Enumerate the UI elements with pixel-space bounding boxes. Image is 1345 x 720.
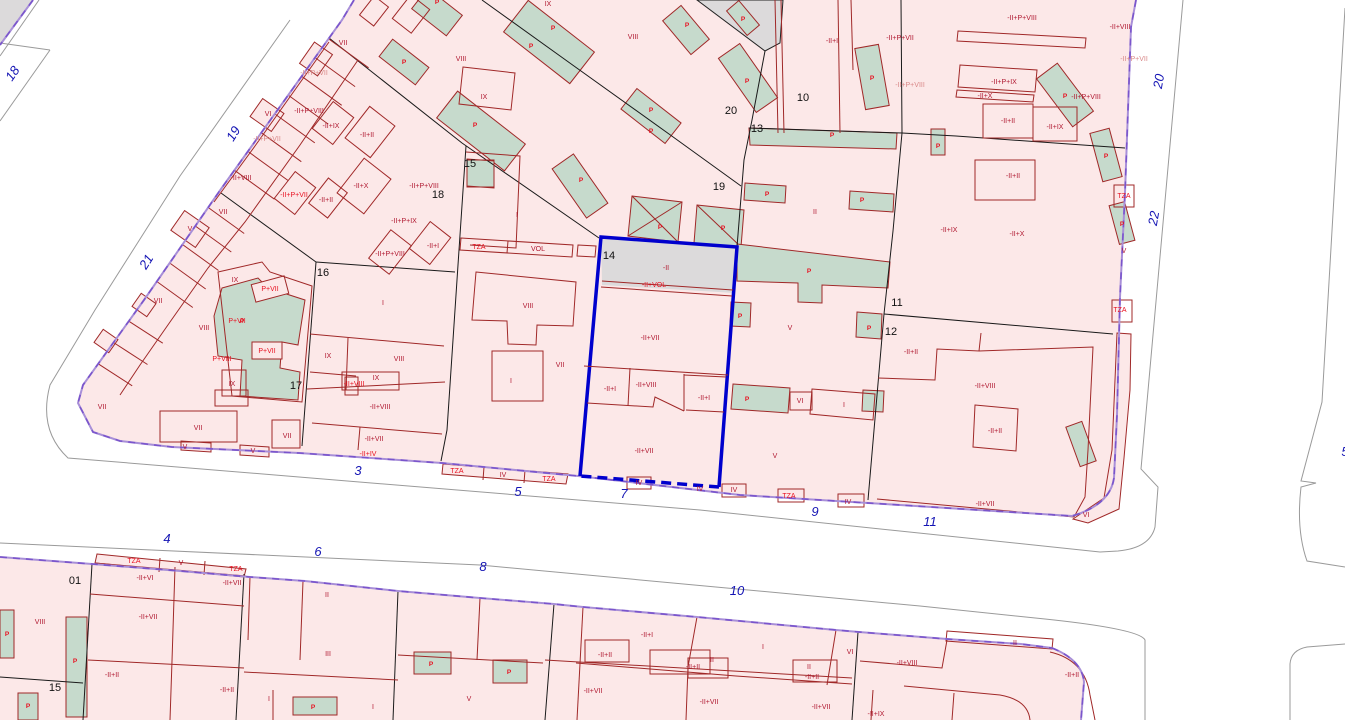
svg-text:-II+VIII: -II+VIII [897, 660, 918, 667]
svg-text:12: 12 [885, 326, 897, 338]
svg-text:II: II [710, 657, 714, 664]
svg-text:TZA: TZA [472, 244, 486, 251]
svg-text:P+VIII: P+VIII [212, 356, 231, 363]
svg-text:11: 11 [923, 514, 937, 529]
svg-text:4: 4 [163, 531, 170, 546]
svg-text:-II+II: -II+II [105, 672, 119, 679]
svg-text:II: II [325, 592, 329, 599]
svg-text:-II+IX: -II+IX [868, 711, 885, 718]
svg-text:I: I [268, 696, 270, 703]
svg-text:VIII: VIII [456, 56, 467, 63]
svg-text:-II+II: -II+II [1006, 173, 1020, 180]
svg-text:VI: VI [797, 398, 804, 405]
svg-text:P: P [402, 59, 407, 66]
svg-text:P: P [473, 122, 478, 129]
svg-text:IX: IX [545, 1, 552, 8]
svg-text:-II+I: -II+I [427, 243, 439, 250]
svg-text:IV: IV [697, 486, 704, 493]
svg-text:TZA: TZA [450, 468, 464, 475]
svg-text:-II+VII: -II+VII [641, 335, 660, 342]
svg-text:-II+VII: -II+VII [223, 580, 242, 587]
svg-text:-II+II: -II+II [686, 664, 700, 671]
svg-text:P: P [1120, 221, 1125, 228]
svg-text:P: P [936, 143, 941, 150]
svg-text:-II+VIII: -II+VIII [1110, 24, 1131, 31]
svg-text:-II+IX: -II+IX [1047, 124, 1064, 131]
svg-text:P: P [870, 75, 875, 82]
svg-text:15: 15 [464, 158, 476, 170]
svg-text:VOL: VOL [531, 246, 545, 253]
svg-text:TZA: TZA [127, 558, 141, 565]
svg-text:V: V [183, 444, 188, 451]
svg-text:-II+II: -II+II [988, 428, 1002, 435]
svg-text:-II+VII: -II+VII [365, 436, 384, 443]
svg-text:P: P [1063, 93, 1068, 100]
svg-text:TZA: TZA [1113, 307, 1127, 314]
svg-text:P: P [830, 132, 835, 139]
svg-text:V: V [251, 448, 256, 455]
svg-text:P: P [579, 177, 584, 184]
svg-text:I: I [516, 212, 518, 219]
svg-text:10: 10 [730, 583, 745, 598]
svg-text:P: P [765, 191, 770, 198]
svg-text:P: P [721, 225, 726, 232]
svg-text:-II+VIII: -II+VIII [975, 383, 996, 390]
svg-text:P: P [649, 107, 654, 114]
svg-text:P: P [240, 318, 245, 325]
svg-text:P: P [429, 661, 434, 668]
svg-text:16: 16 [317, 267, 329, 279]
svg-text:II: II [807, 664, 811, 671]
svg-text:II: II [1013, 640, 1017, 647]
svg-text:-II+P+VIII: -II+P+VIII [1071, 94, 1101, 101]
svg-text:-II+VII: -II+VII [635, 448, 654, 455]
svg-text:VIII: VIII [628, 34, 639, 41]
svg-text:P: P [551, 25, 556, 32]
svg-text:-II+VII: -II+VII [976, 501, 995, 508]
svg-text:14: 14 [603, 250, 615, 262]
svg-text:I: I [510, 378, 512, 385]
svg-text:-II+II: -II+II [598, 652, 612, 659]
svg-text:IX: IX [229, 381, 236, 388]
svg-text:I: I [762, 644, 764, 651]
svg-text:-II+P+VIII: -II+P+VIII [1007, 15, 1037, 22]
svg-text:P: P [685, 22, 690, 29]
svg-text:15: 15 [49, 682, 61, 694]
svg-text:20: 20 [725, 105, 737, 117]
svg-text:9: 9 [811, 504, 818, 519]
svg-text:P+VII: P+VII [258, 348, 275, 355]
svg-text:8: 8 [479, 559, 487, 574]
svg-text:II: II [813, 209, 817, 216]
svg-text:VI: VI [1083, 512, 1090, 519]
svg-text:VIII: VIII [394, 356, 405, 363]
svg-text:-II: -II [663, 265, 669, 272]
svg-text:-II+P+IX: -II+P+IX [391, 218, 417, 225]
svg-text:IV: IV [731, 487, 738, 494]
svg-text:13: 13 [751, 123, 763, 135]
svg-text:-II+P+VII: -II+P+VII [886, 35, 914, 42]
svg-text:I: I [843, 402, 845, 409]
svg-text:VII: VII [339, 40, 348, 47]
svg-text:-II+X: -II+X [978, 93, 993, 100]
svg-text:10: 10 [797, 92, 809, 104]
svg-text:-II+I: -II+I [826, 38, 838, 45]
svg-text:18: 18 [432, 189, 444, 201]
svg-text:P: P [745, 78, 750, 85]
svg-text:P: P [807, 268, 812, 275]
svg-text:-II+II: -II+II [1001, 118, 1015, 125]
svg-text:P: P [860, 197, 865, 204]
svg-text:-II+I: -II+I [604, 386, 616, 393]
svg-text:TZA: TZA [1117, 193, 1131, 200]
svg-text:P: P [741, 16, 746, 23]
svg-text:VIII: VIII [523, 303, 534, 310]
svg-text:-II+I: -II+I [698, 395, 710, 402]
svg-text:5: 5 [1341, 444, 1345, 459]
svg-text:V: V [773, 453, 778, 460]
svg-text:-II+X: -II+X [1010, 231, 1025, 238]
svg-text:III: III [325, 651, 331, 658]
svg-text:IX: IX [232, 277, 239, 284]
svg-text:-II+II: -II+II [360, 132, 374, 139]
svg-text:P: P [73, 658, 78, 665]
svg-text:-II+VIII: -II+VIII [370, 404, 391, 411]
svg-text:-II+P+VIII: -II+P+VIII [294, 108, 324, 115]
svg-text:IV: IV [500, 472, 507, 479]
svg-text:-II+VII: -II+VII [584, 688, 603, 695]
svg-text:-II+IX: -II+IX [323, 123, 340, 130]
svg-text:V: V [1122, 248, 1127, 255]
svg-text:-II+VII: -II+VII [139, 614, 158, 621]
svg-text:-II+P+VII: -II+P+VII [280, 192, 308, 199]
svg-text:IX: IX [481, 94, 488, 101]
svg-text:-II+P+VII: -II+P+VII [1120, 56, 1148, 63]
svg-text:P: P [1104, 153, 1109, 160]
svg-text:19: 19 [713, 181, 725, 193]
svg-text:IV: IV [845, 499, 852, 506]
svg-text:VII: VII [194, 425, 203, 432]
svg-text:VI: VI [265, 111, 272, 118]
svg-text:-II+II: -II+II [805, 674, 819, 681]
svg-text:-II+VI: -II+VI [137, 575, 154, 582]
svg-text:P: P [507, 669, 512, 676]
svg-text:V: V [179, 560, 184, 567]
svg-text:P: P [658, 224, 663, 231]
svg-text:VII: VII [98, 404, 107, 411]
svg-text:TZA: TZA [542, 476, 556, 483]
svg-text:6: 6 [314, 544, 322, 559]
svg-text:-II+X: -II+X [354, 183, 369, 190]
svg-text:V: V [188, 226, 193, 233]
svg-text:V: V [467, 696, 472, 703]
svg-text:01: 01 [69, 575, 81, 587]
svg-text:P: P [738, 313, 743, 320]
svg-text:5: 5 [514, 484, 522, 499]
svg-text:-II+IX: -II+IX [941, 227, 958, 234]
svg-text:-II+P+VIII: -II+P+VIII [895, 82, 925, 89]
svg-text:VII: VII [219, 209, 228, 216]
svg-text:-II+IV: -II+IV [360, 451, 377, 458]
svg-text:-II+VII: -II+VII [700, 699, 719, 706]
svg-text:-II+P+VII: -II+P+VII [300, 70, 328, 77]
svg-text:-II+II: -II+II [1065, 672, 1079, 679]
svg-text:-II+VIII: -II+VIII [636, 382, 657, 389]
svg-text:P: P [745, 396, 750, 403]
svg-text:VII: VII [556, 362, 565, 369]
svg-text:11: 11 [891, 297, 902, 309]
svg-text:P: P [649, 128, 654, 135]
svg-text:VII: VII [154, 298, 163, 305]
svg-text:-II+VII: -II+VII [812, 704, 831, 711]
svg-text:VIII: VIII [35, 619, 46, 626]
svg-text:P+VII: P+VII [261, 286, 278, 293]
svg-text:-II+P+IX: -II+P+IX [991, 79, 1017, 86]
svg-text:P: P [435, 0, 440, 6]
svg-text:V: V [788, 325, 793, 332]
svg-text:IX: IX [325, 353, 332, 360]
svg-text:-II+P+VII: -II+P+VII [253, 136, 281, 143]
svg-text:P: P [26, 703, 31, 710]
svg-text:-II+VOL: -II+VOL [642, 282, 666, 289]
svg-text:P: P [867, 325, 872, 332]
svg-text:P: P [5, 631, 10, 638]
svg-text:VII: VII [283, 433, 292, 440]
svg-text:-II+II: -II+II [319, 197, 333, 204]
svg-text:-II+VIII: -II+VIII [231, 175, 252, 182]
svg-text:P: P [529, 43, 534, 50]
svg-text:-II+VIII: -II+VIII [344, 381, 365, 388]
svg-text:-II+P+VIII: -II+P+VIII [375, 251, 405, 258]
svg-text:P: P [311, 704, 316, 711]
svg-text:3: 3 [354, 463, 362, 478]
svg-text:7: 7 [620, 486, 628, 501]
svg-text:-II+P+VIII: -II+P+VIII [409, 183, 439, 190]
svg-text:VI: VI [847, 649, 854, 656]
svg-text:VIII: VIII [199, 325, 210, 332]
svg-text:I: I [382, 300, 384, 307]
svg-text:17: 17 [290, 380, 302, 392]
svg-text:TZA: TZA [782, 493, 796, 500]
svg-text:TZA: TZA [229, 566, 243, 573]
svg-text:-II+II: -II+II [220, 687, 234, 694]
svg-text:I: I [372, 704, 374, 711]
svg-text:IV: IV [636, 480, 643, 487]
svg-text:-II+II: -II+II [904, 349, 918, 356]
svg-text:-II+I: -II+I [641, 632, 653, 639]
svg-text:IX: IX [373, 375, 380, 382]
